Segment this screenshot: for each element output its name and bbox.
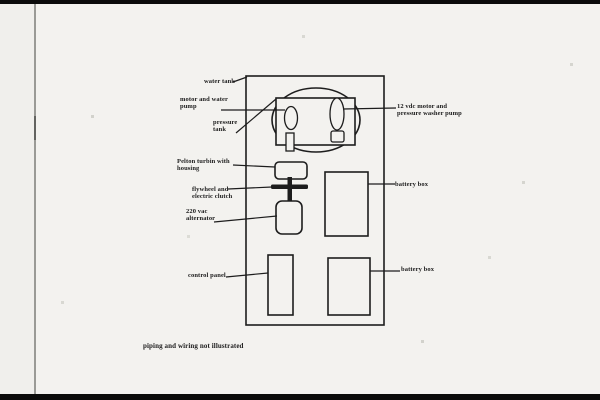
drive-shaft-shape	[288, 177, 293, 202]
scan-artifact-bottom-bar	[0, 394, 600, 400]
alternator-shape	[276, 201, 302, 234]
label-pressure-tank: pressure tank	[213, 119, 237, 133]
pressure-tank-shape	[286, 133, 294, 151]
equipment-layout-diagram	[0, 0, 600, 400]
leader-flywheel	[228, 187, 272, 189]
leader-pressure-tank	[236, 99, 276, 133]
battery-box-upper-shape	[325, 172, 368, 236]
label-control-panel: control panel	[188, 272, 226, 279]
motor-12vdc-shape	[330, 98, 344, 130]
leader-pelton	[233, 165, 275, 167]
label-12vdc-motor: 12 vdc motor and pressure washer pump	[397, 103, 462, 117]
label-motor-water-pump: motor and water pump	[180, 96, 228, 110]
label-battery-box-upper: battery box	[395, 181, 428, 188]
scanned-diagram-page: water tank motor and water pump pressure…	[0, 0, 600, 400]
label-pelton-turbine: Pelton turbin with housing	[177, 158, 230, 172]
motor-water-pump-shape	[285, 107, 298, 130]
label-water-tank: water tank	[175, 78, 235, 85]
pressure-washer-pump-shape	[331, 131, 344, 142]
label-flywheel-clutch: flywheel and electric clutch	[192, 186, 232, 200]
label-alternator: 220 vac alternator	[186, 208, 215, 222]
control-panel-shape	[268, 255, 293, 315]
leader-control-panel	[226, 273, 268, 277]
battery-box-lower-shape	[328, 258, 370, 315]
label-battery-box-lower: battery box	[401, 266, 434, 273]
scan-artifact-top-bar	[0, 0, 600, 4]
flywheel-clutch-shape	[271, 185, 308, 190]
pelton-housing-shape	[275, 162, 307, 179]
leader-water-tank	[233, 77, 247, 82]
label-footnote: piping and wiring not illustrated	[143, 343, 244, 350]
